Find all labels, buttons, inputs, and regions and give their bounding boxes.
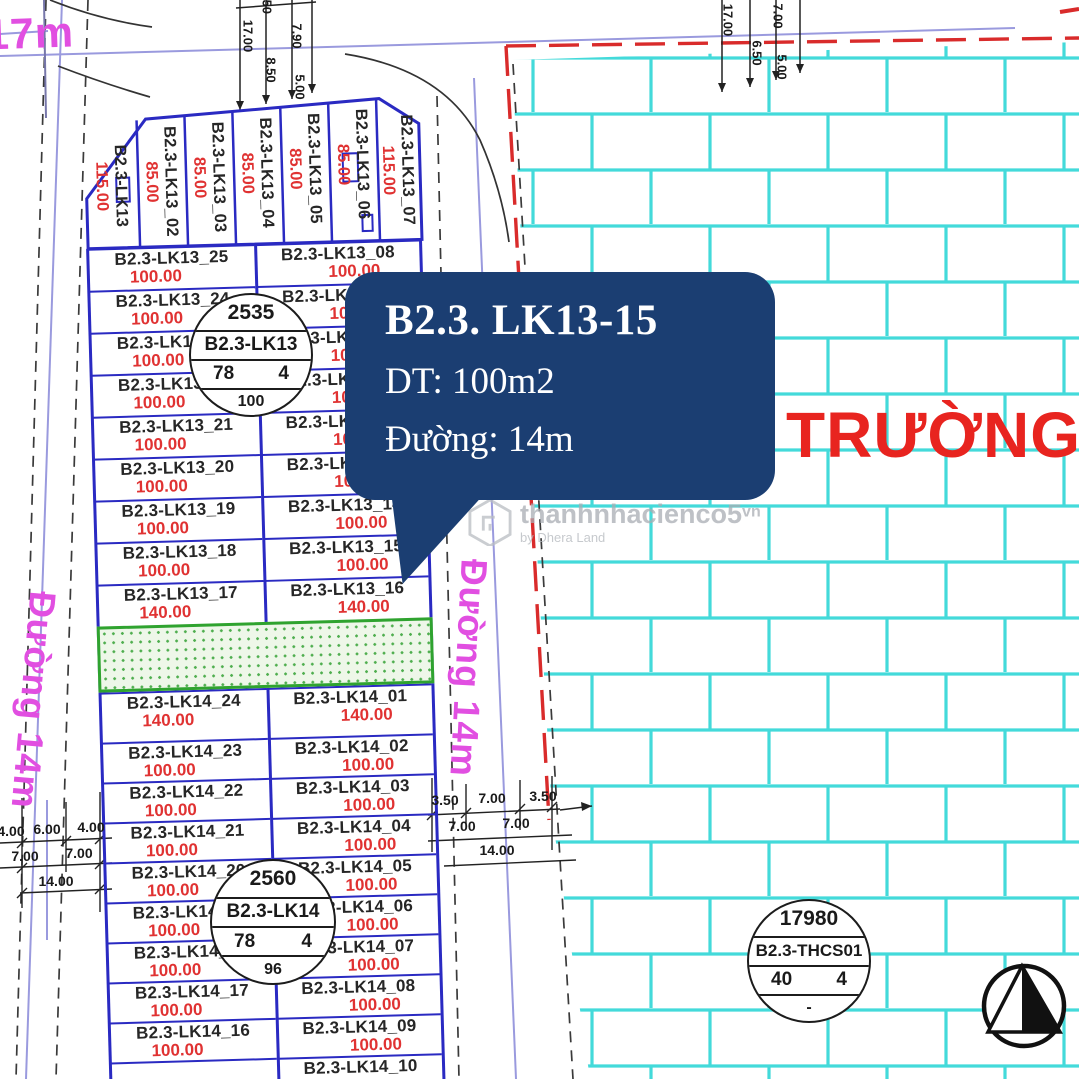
dimension-label: 8.50 (264, 57, 279, 82)
plot-area: 100.00 (347, 955, 399, 974)
plot-area: 100.00 (335, 514, 387, 533)
dimension-label: 14.00 (479, 842, 514, 858)
plot-area: 100.00 (345, 875, 397, 894)
plot-area: 100.00 (342, 755, 394, 774)
plot-cell[interactable]: B2.3-LK13_0285.00 (141, 126, 181, 238)
plot-cell[interactable]: B2.3-LK14_24140.00 (101, 688, 268, 743)
plot-cell[interactable]: B2.3-LK13_16140.00 (265, 575, 429, 622)
tooltip-area-line: DT: 100m2 (385, 360, 775, 403)
plot-area: 140.00 (341, 705, 393, 724)
plot-cell[interactable]: B2.3-LK13_21100.00 (93, 412, 260, 459)
plot-area: 100.00 (343, 795, 395, 814)
dimension-label: 5.00 (293, 74, 308, 99)
plot-area: 140.00 (139, 603, 191, 622)
dimension-label: 3.50 (529, 788, 556, 804)
plot-area: 100.00 (138, 561, 190, 580)
dimension-label: .50 (260, 0, 275, 14)
watermark: thanhnhacienco5vn by Dhera Land (468, 498, 761, 546)
green-buffer-strip (97, 617, 435, 692)
plot-cell[interactable]: B2.3-LK14_02100.00 (270, 733, 434, 778)
plot-label: B2.3-LK13_07 (396, 114, 418, 225)
plot-cell[interactable]: B2.3-LK14_10 (279, 1053, 443, 1079)
plot-cell[interactable]: B2.3-LK13_0385.00 (189, 122, 229, 234)
plot-cell[interactable]: B2.3-LK14_03100.00 (271, 773, 435, 818)
plot-cell[interactable]: B2.3-LK13_0685.00 (333, 109, 373, 221)
plot-area: 115.00 (379, 145, 398, 195)
dimension-label: 7.00 (65, 845, 92, 861)
badge-thcs01-left: 40 (771, 969, 792, 991)
dimension-label: 6.50 (750, 40, 765, 65)
badge-lk13: 2535 B2.3-LK13 78 4 100 (189, 293, 313, 417)
plot-cell[interactable] (111, 1058, 278, 1079)
plot-area: 100.00 (134, 435, 186, 454)
plot-cell[interactable]: B2.3-LK13_0485.00 (237, 117, 277, 229)
plot-area: 100.00 (346, 915, 398, 934)
plot-area: 100.00 (350, 1035, 402, 1054)
plot-label: B2.3-LK13_05 (303, 113, 325, 224)
plot-area: 85.00 (238, 152, 257, 194)
plot-cell[interactable]: B2.3-LK14_22100.00 (103, 778, 270, 823)
dimension-label: 7.90 (290, 23, 305, 48)
plot-area: 100.00 (349, 995, 401, 1014)
plot-area: 100.00 (145, 801, 197, 820)
plot-area: 85.00 (334, 144, 353, 186)
road-label-17m: 17m (0, 8, 75, 60)
school-name-text: TRƯỜNG T (786, 398, 1079, 472)
watermark-byline: by Dhera Land (520, 530, 761, 545)
plot-area: 100.00 (133, 393, 185, 412)
plot-label: B2.3-LK13 (110, 144, 131, 227)
plot-area: 85.00 (286, 148, 305, 190)
dimension-label: 7.00 (502, 815, 529, 831)
plot-area: 100.00 (147, 881, 199, 900)
plot-cell[interactable]: B2.3-LK13_18100.00 (96, 538, 263, 585)
plot-label: B2.3-LK13_03 (207, 122, 229, 233)
dimension-label: 17.00 (721, 4, 736, 37)
plot-area: 100.00 (137, 519, 189, 538)
plot-label: B2.3-LK13_04 (255, 117, 277, 228)
plot-area: 100.00 (130, 267, 182, 286)
badge-lk13-left: 78 (213, 363, 234, 385)
badge-lk14-left: 78 (234, 931, 255, 953)
dimension-label: 3.50 (431, 792, 458, 808)
plot-area: 140.00 (142, 711, 194, 730)
dimension-label: 7.00 (448, 818, 475, 834)
plot-cell[interactable]: B2.3-LK14_16100.00 (110, 1018, 277, 1063)
watermark-domain: vn (742, 504, 761, 521)
plot-area: 100.00 (150, 1001, 202, 1020)
north-arrow-icon (984, 966, 1064, 1046)
plot-area: 100.00 (132, 351, 184, 370)
dimension-label: 7.00 (771, 3, 786, 28)
plot-area: 100.00 (146, 841, 198, 860)
badge-lk14-right: 4 (301, 931, 312, 953)
dimension-label: 7.00 (478, 790, 505, 806)
plot-tooltip: B2.3. LK13-15 DT: 100m2 Đường: 14m (345, 272, 775, 500)
plot-area: 100.00 (336, 555, 388, 574)
plot-area: 115.00 (92, 161, 111, 211)
tooltip-road-line: Đường: 14m (385, 418, 775, 461)
badge-thcs01-right: 4 (836, 969, 847, 991)
plot-cell[interactable]: B2.3-LK13_25100.00 (88, 244, 255, 291)
plot-area: 100.00 (136, 477, 188, 496)
plot-cell[interactable]: B2.3-LK13_0585.00 (285, 113, 325, 225)
plot-cell[interactable]: B2.3-LK14_01140.00 (268, 683, 432, 738)
watermark-house-icon (468, 498, 512, 546)
plot-cell[interactable]: B2.3-LK14_21100.00 (104, 818, 271, 863)
dimension-label: 4.00 (0, 823, 25, 839)
plot-cell[interactable]: B2.3-LK14_17100.00 (109, 978, 276, 1023)
plot-area: 100.00 (344, 835, 396, 854)
dimension-label: 7.00 (11, 848, 38, 864)
plot-cell[interactable]: B2.3-LK14_08100.00 (277, 973, 441, 1018)
plot-area: 100.00 (131, 309, 183, 328)
dimension-label: 14.00 (38, 873, 73, 889)
plot-cell[interactable]: B2.3-LK14_04100.00 (272, 813, 436, 858)
plot-cell[interactable]: B2.3-LK13_20100.00 (94, 454, 261, 501)
dimension-label: 17.00 (241, 20, 256, 53)
dimension-label: 5.00 (775, 54, 790, 79)
plot-label: B2.3-LK13_06 (351, 109, 373, 220)
plot-label: B2.3-LK13_02 (159, 126, 181, 237)
cadastral-map: B2.3-LK13115.00B2.3-LK13_0285.00B2.3-LK1… (0, 0, 1079, 1079)
plot-area: 100.00 (151, 1041, 203, 1060)
badge-lk13-name: B2.3-LK13 (191, 330, 311, 358)
plot-cell[interactable]: B2.3-LK14_23100.00 (102, 738, 269, 783)
tooltip-title: B2.3. LK13-15 (385, 296, 775, 345)
plot-area: 85.00 (142, 161, 161, 203)
plot-area: 140.00 (337, 597, 389, 616)
badge-lk14-name: B2.3-LK14 (212, 897, 334, 926)
plot-area: 100.00 (143, 761, 195, 780)
plot-cell[interactable]: B2.3-LK13_17140.00 (97, 580, 264, 627)
dimension-label: 4.00 (77, 819, 104, 835)
plot-area: 85.00 (190, 157, 209, 199)
badge-lk13-right: 4 (278, 363, 289, 385)
plot-cell[interactable]: B2.3-LK13115.00 (92, 144, 131, 228)
plot-area: 100.00 (148, 921, 200, 940)
plot-label: B2.3-LK14_10 (303, 1056, 417, 1078)
plot-cell[interactable]: B2.3-LK13_07115.00 (378, 114, 418, 226)
badge-thcs01: 17980 B2.3-THCS01 40 4 - (747, 899, 871, 1023)
dimension-label: 6.00 (33, 821, 60, 837)
badge-lk14: 2560 B2.3-LK14 78 4 96 (210, 859, 336, 985)
badge-thcs01-name: B2.3-THCS01 (749, 936, 869, 964)
plot-cell[interactable]: B2.3-LK13_19100.00 (95, 496, 262, 543)
plot-cell[interactable]: B2.3-LK14_09100.00 (278, 1013, 442, 1058)
plot-area: 100.00 (149, 961, 201, 980)
watermark-brand: thanhnhacienco5 (520, 499, 742, 529)
